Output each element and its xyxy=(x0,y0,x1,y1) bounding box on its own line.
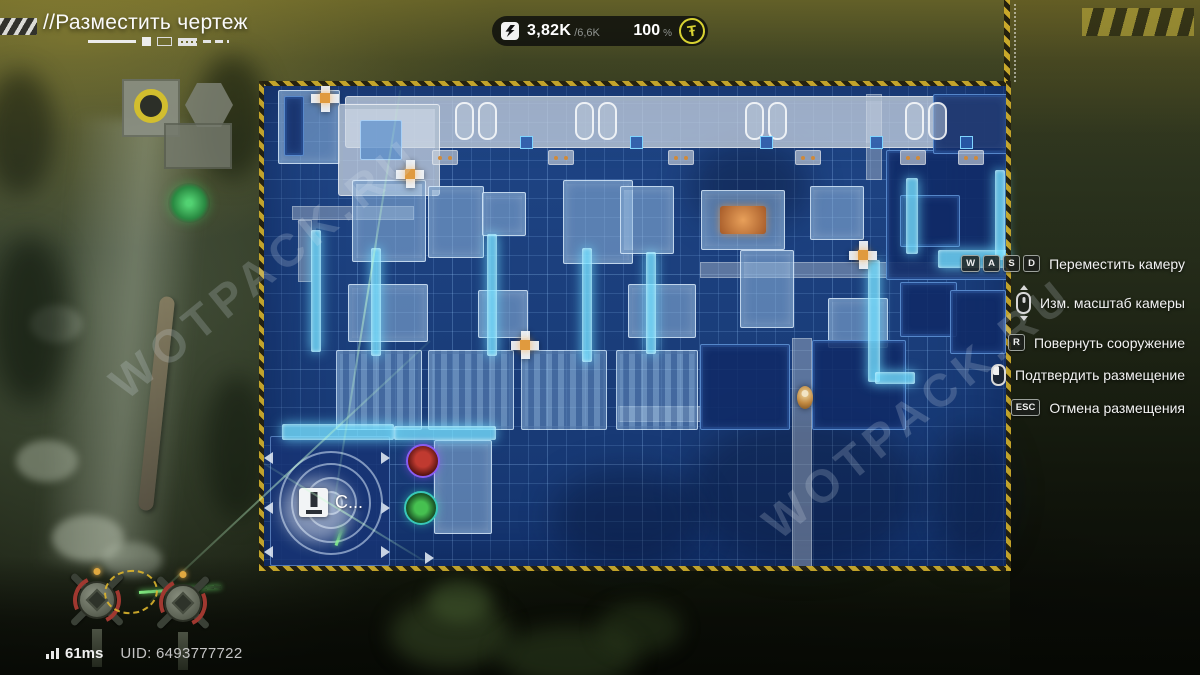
turret-base xyxy=(164,584,202,622)
panel xyxy=(905,102,924,140)
panel xyxy=(575,102,594,140)
conveyor xyxy=(394,426,496,440)
output-pad xyxy=(668,150,694,165)
defense-turret xyxy=(146,566,220,640)
structure-furn xyxy=(336,350,422,430)
output-pad xyxy=(795,150,821,165)
structure-mach xyxy=(482,192,526,236)
structure-furn xyxy=(616,350,698,430)
player-character xyxy=(797,386,813,409)
output-pad xyxy=(900,150,926,165)
panel xyxy=(455,102,474,140)
power-pole-icon xyxy=(849,241,877,269)
output-pad xyxy=(548,150,574,165)
panel xyxy=(928,102,947,140)
structure-machO xyxy=(701,190,785,250)
output-pad xyxy=(958,150,984,165)
structure-mach xyxy=(628,284,696,338)
conveyor xyxy=(868,260,880,382)
panel xyxy=(598,102,617,140)
blueprint-border-top xyxy=(259,81,1011,86)
junction xyxy=(870,136,883,149)
structure-dark xyxy=(900,282,957,337)
structure-mach xyxy=(434,440,492,534)
game-viewport[interactable]: С... WOTPACK.RU WOTPACK.RU //Разместить … xyxy=(0,0,1200,675)
edge-arrow-icon xyxy=(425,552,434,564)
strip-panel-pair xyxy=(905,102,947,140)
power-pole-icon xyxy=(311,84,339,112)
panel xyxy=(478,102,497,140)
structure-dark xyxy=(284,96,304,156)
panel xyxy=(745,102,764,140)
panel xyxy=(768,102,787,140)
conveyor xyxy=(646,252,656,354)
junction xyxy=(760,136,773,149)
structure-mach xyxy=(428,186,484,258)
turret-post xyxy=(92,629,102,667)
structure-mach xyxy=(740,250,794,328)
blueprint-border-bottom xyxy=(259,566,1011,571)
machine-core xyxy=(720,206,766,234)
structure-furn xyxy=(428,350,514,430)
edge-arrow-icon xyxy=(264,502,273,514)
resource-badge-icon xyxy=(404,491,438,525)
strip-panel-pair xyxy=(455,102,497,140)
strip-panel-pair xyxy=(745,102,787,140)
junction xyxy=(630,136,643,149)
cloud-shadow xyxy=(930,428,1010,560)
conveyor xyxy=(582,248,592,362)
junction xyxy=(520,136,533,149)
threat-badge-icon xyxy=(406,444,440,478)
structure-dark xyxy=(700,344,790,430)
edge-arrow-icon xyxy=(264,546,273,558)
cloud-shadow xyxy=(552,468,702,568)
junction xyxy=(960,136,973,149)
edge-arrow-icon xyxy=(264,452,273,464)
conveyor xyxy=(995,170,1005,260)
output-pad xyxy=(432,150,458,165)
turret-emblem xyxy=(172,592,195,615)
structure-mach xyxy=(810,186,864,240)
power-pole-icon xyxy=(511,331,539,359)
turret-post xyxy=(178,632,188,670)
conveyor xyxy=(906,178,918,254)
structure-mach xyxy=(620,186,674,254)
structure-furn xyxy=(521,350,607,430)
turret-light xyxy=(94,568,101,575)
obelisk-base-glyph xyxy=(306,510,322,514)
conveyor xyxy=(487,234,497,356)
strip-panel-pair xyxy=(575,102,617,140)
turret-light xyxy=(180,571,187,578)
